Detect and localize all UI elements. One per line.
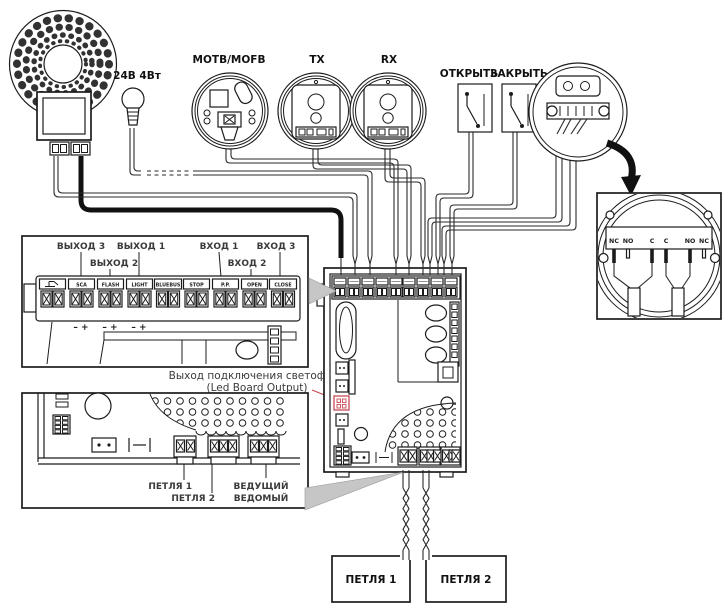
selector-detail-box: NC NO C C NO NC xyxy=(593,190,725,322)
det-term-nc1: NC xyxy=(609,238,619,245)
open-switch-icon xyxy=(458,84,492,132)
main-control-board xyxy=(317,268,466,477)
flashing-lamp xyxy=(10,11,117,156)
terminal-sca: SCA xyxy=(69,279,95,307)
led-board-output-connector xyxy=(334,396,349,410)
det-term-nc2: NC xyxy=(699,238,709,245)
label-loop2: ПЕТЛЯ 2 xyxy=(171,494,215,504)
loop1-terminal xyxy=(174,436,196,464)
svg-text:P.P.: P.P. xyxy=(221,282,230,288)
io-label-out3: ВЫХОД 3 xyxy=(57,242,105,252)
svg-text:LIGHT: LIGHT xyxy=(131,282,148,288)
terminal-light: LIGHT xyxy=(127,279,153,307)
io-label-in2: ВХОД 2 xyxy=(228,259,267,269)
note-line1: Выход подключения светофора xyxy=(169,370,346,382)
svg-text:OPEN: OPEN xyxy=(247,282,262,288)
terminal-stop: STOP xyxy=(184,279,210,307)
twisted-pair-1 xyxy=(403,488,409,550)
close-label: ЗАКРЫТЬ xyxy=(490,68,548,80)
io-label-in1: ВХОД 1 xyxy=(200,242,239,252)
svg-text:BLUEBUS: BLUEBUS xyxy=(156,282,181,288)
board-terminal-strip xyxy=(332,276,460,299)
loop2-box-label: ПЕТЛЯ 2 xyxy=(441,574,492,586)
svg-text:CLOSE: CLOSE xyxy=(274,282,291,288)
terminal-antenna xyxy=(40,279,66,307)
polarity-sca: – + xyxy=(73,323,88,333)
master-slave-terminal xyxy=(248,436,279,464)
det-term-c1: C xyxy=(650,238,655,245)
lamp-label: 24В 4Вт xyxy=(113,70,162,82)
svg-text:FLASH: FLASH xyxy=(102,282,120,288)
terminal-close: CLOSE xyxy=(270,279,297,307)
io-label-in3: ВХОД 3 xyxy=(257,242,296,252)
label-slave: ВЕДОМЫЙ xyxy=(234,492,289,504)
tx-label: TX xyxy=(309,54,324,66)
board-bottom-detail-box: ПЕТЛЯ 1 ПЕТЛЯ 2 ВЕДУЩИЙ ВЕДОМЫЙ xyxy=(22,393,308,508)
photocell-rx: RX xyxy=(350,54,426,149)
twisted-pair-2 xyxy=(423,488,429,550)
label-master: ВЕДУЩИЙ xyxy=(234,480,289,492)
svg-text:SCA: SCA xyxy=(76,282,87,288)
terminal-bluebus: BLUEBUS xyxy=(155,279,182,307)
board-loop-terminals xyxy=(398,447,460,465)
terminal-flash: FLASH xyxy=(98,279,124,307)
selector-detail-arrow xyxy=(607,143,641,196)
loop1-box-label: ПЕТЛЯ 1 xyxy=(346,574,397,586)
io-label-out1: ВЫХОД 1 xyxy=(117,242,165,252)
terminal-open: OPEN xyxy=(242,279,268,307)
motb-label: MOTB/MOFB xyxy=(193,54,266,66)
photocell-tx: TX xyxy=(278,54,354,149)
label-loop1: ПЕТЛЯ 1 xyxy=(148,482,192,492)
det-term-no2: NO xyxy=(685,238,696,245)
arrow-bottom-detail xyxy=(305,472,404,510)
wiring-diagram: ВЫХОД 3 ВЫХОД 2 ВЫХОД 1 ВХОД 1 ВХОД 2 ВХ… xyxy=(0,0,728,616)
photocell-motb: MOTB/MOFB xyxy=(192,54,268,149)
svg-text:STOP: STOP xyxy=(189,282,204,288)
loop2-terminal xyxy=(208,436,239,464)
courtesy-lamp: 24В 4Вт xyxy=(113,70,162,125)
terminal-detail-box: ВЫХОД 3 ВЫХОД 2 ВЫХОД 1 ВХОД 1 ВХОД 2 ВХ… xyxy=(22,236,308,367)
terminal-strip: SCA FLASH LIGHT BLUEBUS STOP xyxy=(36,276,300,321)
io-label-out2: ВЫХОД 2 xyxy=(90,259,138,269)
terminal-pp: P.P. xyxy=(213,279,239,307)
rx-label: RX xyxy=(381,54,397,66)
bulb-icon xyxy=(122,88,144,110)
det-term-c2: C xyxy=(664,238,669,245)
det-term-no1: NO xyxy=(623,238,634,245)
